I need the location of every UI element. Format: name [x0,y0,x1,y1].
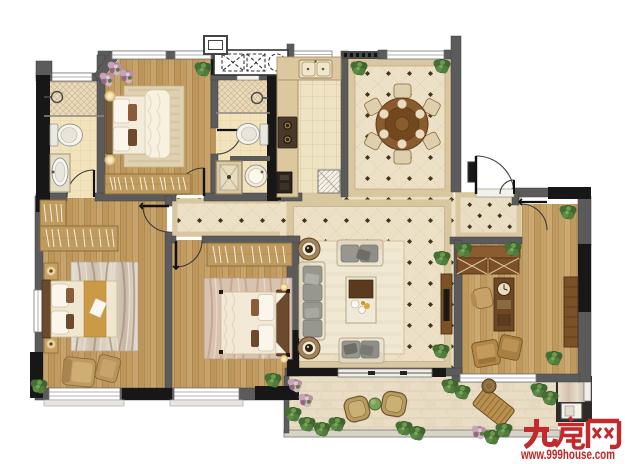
svg-text:www.999house.com: www.999house.com [520,446,615,462]
